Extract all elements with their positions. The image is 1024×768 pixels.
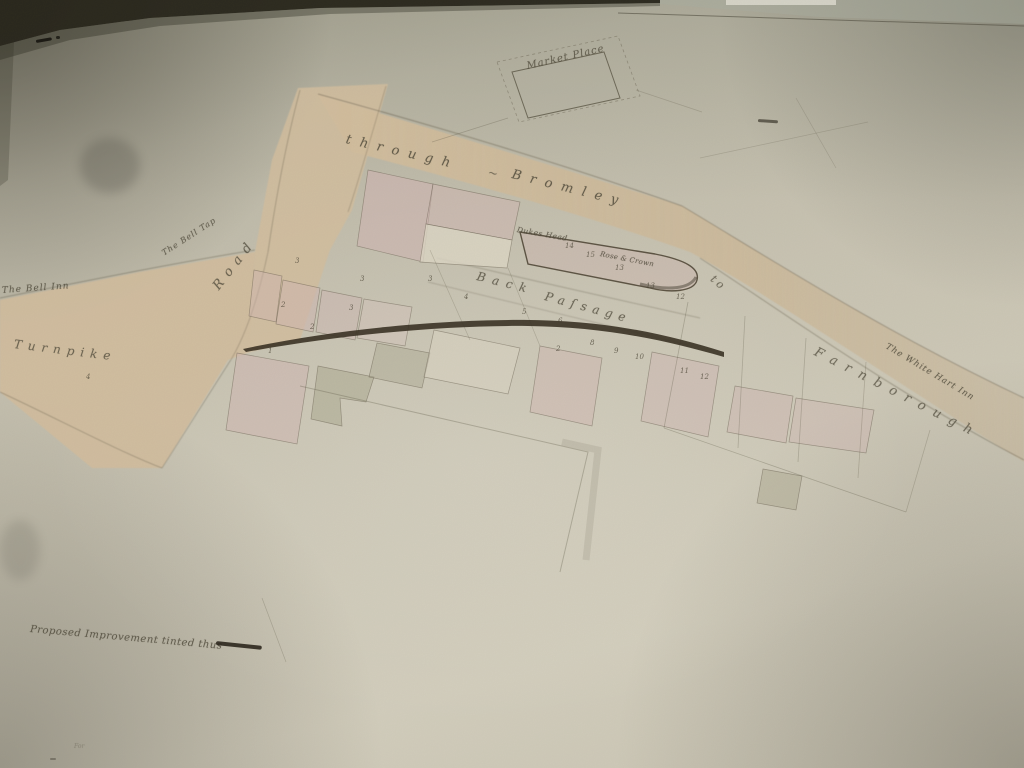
- back-passage-passage: Paſsage: [543, 290, 632, 325]
- photo-dash: [56, 36, 60, 39]
- dukes-head-label: Dukes Head: [516, 226, 568, 242]
- plot-number: 13: [615, 265, 624, 272]
- plot-number: 14: [565, 243, 574, 250]
- bell-tap-label: The Bell Tap: [161, 217, 218, 258]
- road-name-road: Road: [211, 236, 259, 293]
- plot-number: 13: [646, 283, 655, 290]
- plot-number: 3: [428, 276, 432, 283]
- plot-number: 3: [349, 305, 353, 312]
- back-passage-back: Back: [476, 270, 535, 296]
- road-name-to: to: [708, 273, 728, 292]
- plot-number: 2: [281, 302, 285, 309]
- labels-layer: Market Placethrough~BromleyRoadThe Bell …: [0, 0, 1024, 768]
- photo-patch: [0, 520, 40, 580]
- faint-note: For: [74, 744, 84, 750]
- map-photo: Market Placethrough~BromleyRoadThe Bell …: [0, 0, 1024, 768]
- plot-number: 15: [586, 252, 595, 259]
- plot-number: 4: [464, 294, 468, 301]
- plot-number: 2: [310, 324, 314, 331]
- road-name-bromley: Bromley: [510, 168, 628, 209]
- plot-number: 3: [295, 258, 299, 265]
- plot-number: 6: [558, 318, 562, 325]
- photo-dash: [50, 758, 56, 760]
- plot-number: 8: [590, 340, 594, 347]
- plot-number: 1: [268, 348, 272, 355]
- market-place-label: Market Place: [526, 44, 606, 72]
- plot-number: 12: [676, 294, 685, 301]
- photo-dash: [758, 119, 778, 123]
- plot-number: 2: [556, 346, 560, 353]
- plot-number: 12: [700, 374, 709, 381]
- road-name-through: through: [345, 133, 461, 172]
- plot-number: 5: [522, 309, 526, 316]
- plot-number: 10: [635, 354, 644, 361]
- plot-number: 4: [86, 374, 90, 381]
- plot-number: 3: [360, 276, 364, 283]
- legend-text: Proposed Improvement tinted thus: [30, 625, 223, 652]
- plot-number: 11: [680, 368, 689, 375]
- rose-and-crown-label: Rose & Crown: [599, 251, 654, 268]
- turnpike-label: Turnpike: [13, 338, 117, 362]
- photo-dash: [36, 37, 52, 43]
- bell-inn-label: The Bell Inn: [2, 282, 70, 296]
- plot-number: 9: [614, 348, 618, 355]
- photo-patch: [80, 138, 140, 193]
- legend-swatch: [216, 641, 262, 650]
- road-name-dash: ~: [487, 166, 500, 180]
